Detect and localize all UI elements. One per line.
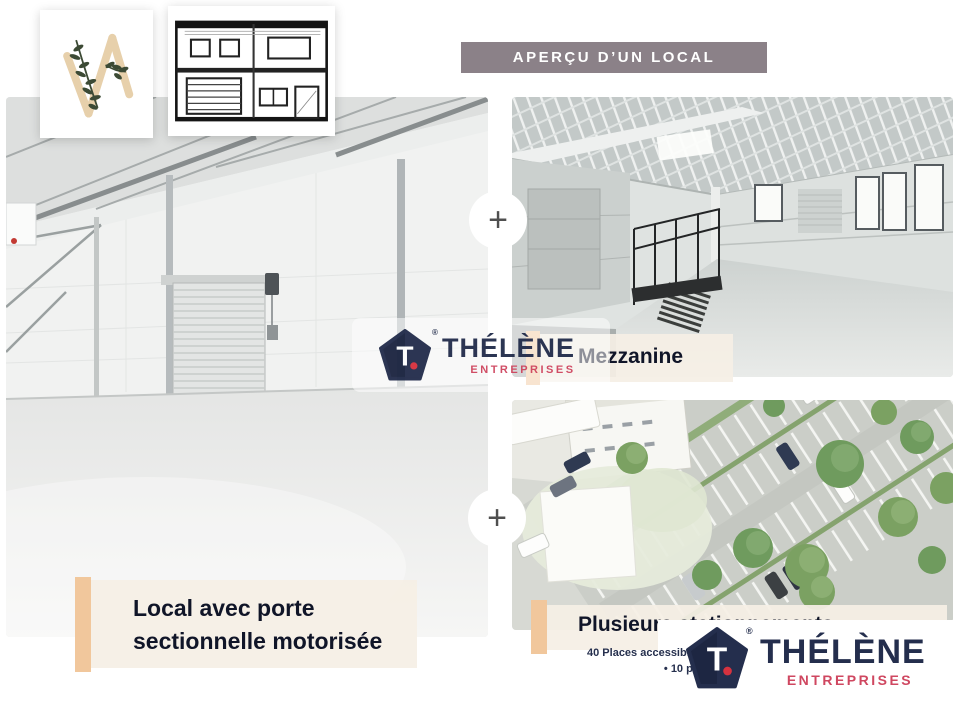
- parking-photo: [512, 400, 953, 630]
- parking-photo-graphic: [512, 400, 953, 630]
- main-caption-box: Local avec porte sectionnelle motorisée: [91, 580, 417, 668]
- plus-separator-bottom: +: [468, 489, 526, 547]
- facade-plan-card: [168, 6, 335, 136]
- brand-name: THÉLÈNE: [442, 333, 575, 364]
- plus-icon: +: [488, 203, 508, 237]
- main-caption-accent-bar: [75, 577, 91, 672]
- registered-mark: ®: [432, 328, 438, 337]
- main-caption-line2: sectionnelle motorisée: [133, 625, 417, 658]
- plus-icon: +: [487, 501, 507, 535]
- building-facade-elevation-icon: [168, 6, 335, 136]
- flyer-canvas: Mezzanine Plusieurs stationnements Local…: [0, 0, 960, 709]
- pentagon-logo-icon: T: [686, 623, 748, 693]
- branch-monogram-icon: [40, 10, 153, 138]
- banner: APERÇU D’UN LOCAL: [461, 42, 767, 73]
- banner-label: APERÇU D’UN LOCAL: [513, 49, 716, 66]
- registered-mark: ®: [746, 626, 753, 636]
- plus-separator-top: +: [469, 191, 527, 249]
- monogram-logo-card: [40, 10, 153, 138]
- watermark-logo: T ® THÉLÈNE ENTREPRISES: [352, 318, 610, 392]
- footer-logo: T ® THÉLÈNE ENTREPRISES: [658, 620, 958, 707]
- brand-subtitle: ENTREPRISES: [448, 364, 598, 376]
- brand-subtitle: ENTREPRISES: [768, 672, 932, 688]
- pentagon-logo-icon: T: [378, 329, 432, 381]
- brand-name: THÉLÈNE: [760, 633, 926, 672]
- main-caption-line1: Local avec porte: [133, 592, 417, 625]
